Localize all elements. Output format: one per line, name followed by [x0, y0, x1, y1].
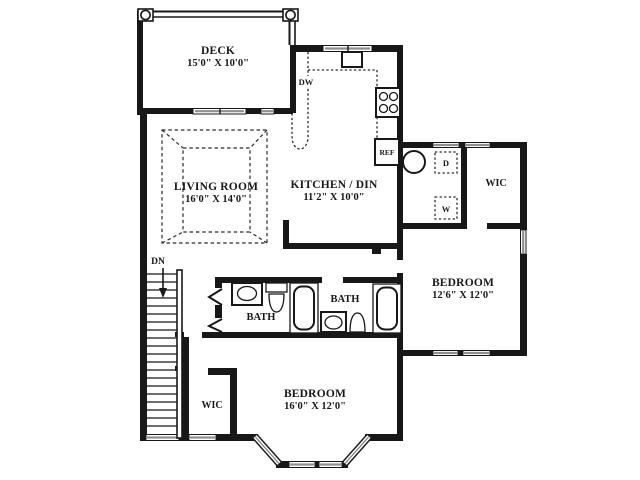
refrigerator-label: REF — [380, 148, 395, 157]
floor-plan-svg: DECK 15'0" X 10'0" LIVING ROOM 16'0" X 1… — [0, 0, 640, 480]
washer-label: W — [442, 204, 451, 214]
living-room-dims: 16'0" X 14'0" — [185, 194, 247, 205]
bath-left-tub — [290, 283, 318, 333]
wic-upper-label: WIC — [485, 178, 506, 189]
deck-railing — [138, 9, 298, 45]
bath-right-label: BATH — [331, 294, 360, 305]
bedroom-right-side-window — [521, 230, 527, 254]
down-arrow-head — [159, 288, 167, 298]
bath-fixtures — [209, 283, 401, 333]
bath-right-tub — [373, 284, 401, 333]
bath-right-toilet — [350, 313, 365, 332]
window — [261, 109, 274, 115]
dishwasher-label: DW — [299, 77, 314, 87]
wic-window — [465, 143, 490, 148]
laundry-window — [433, 143, 459, 148]
bath-left-label: BATH — [247, 312, 276, 323]
door-swing — [209, 289, 222, 305]
kitchen-label: KITCHEN / DIN — [291, 179, 378, 191]
bay-window — [255, 437, 369, 468]
deck-dims: 15'0" X 10'0" — [187, 58, 249, 69]
kitchen-window — [323, 46, 372, 52]
bedroom-right-label: BEDROOM — [432, 277, 494, 289]
bedroom-right-dims: 12'6" X 12'0" — [432, 290, 494, 301]
kitchen-dims: 11'2" X 10'0" — [303, 192, 364, 203]
wic-lower-label: WIC — [201, 400, 222, 411]
stairs-dn-label: DN — [151, 257, 165, 267]
door-swing — [209, 319, 222, 332]
bath-right-sink — [321, 312, 346, 332]
bath-left-sink — [232, 283, 262, 305]
stair-treads — [147, 274, 177, 426]
deck-label: DECK — [201, 45, 235, 57]
bedroom-lower-label: BEDROOM — [284, 388, 346, 400]
bedroom-lower-dims: 16'0" X 12'0" — [284, 401, 346, 412]
stove — [376, 88, 400, 117]
water-heater — [403, 151, 425, 173]
stair-rail — [177, 270, 182, 438]
living-room-label: LIVING ROOM — [174, 181, 258, 193]
bath-left-toilet — [266, 283, 287, 312]
sliding-door — [193, 109, 246, 115]
kitchen-sink — [342, 52, 362, 67]
dryer-label: D — [443, 158, 449, 168]
floor-plan: DECK 15'0" X 10'0" LIVING ROOM 16'0" X 1… — [0, 0, 640, 480]
stairs — [147, 268, 182, 438]
